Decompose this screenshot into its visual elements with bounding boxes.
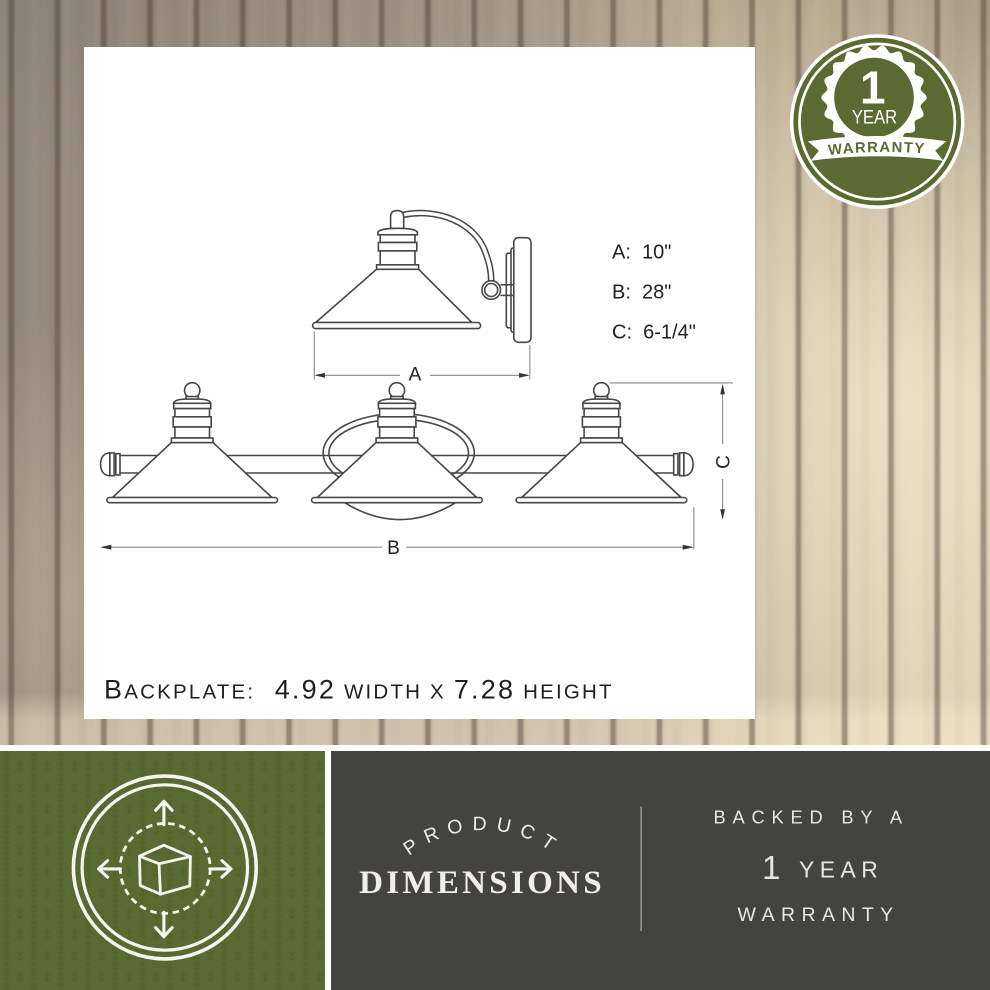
svg-text:BACKED BY A: BACKED BY A <box>714 807 909 828</box>
svg-text:1: 1 <box>762 849 780 886</box>
svg-text:YEAR: YEAR <box>852 106 897 128</box>
svg-text:BACKPLATE: 4.92 WIDTH X 7.28: BACKPLATE: 4.92 WIDTH X 7.28 HEIGHT <box>104 675 614 705</box>
svg-text:YEAR: YEAR <box>799 856 883 882</box>
svg-text:B: 28": B: 28" <box>612 282 671 304</box>
svg-text:A: A <box>409 365 422 386</box>
svg-text:C: 6-1/4": C: 6-1/4" <box>612 322 696 344</box>
svg-text:PRODUCT: PRODUCT <box>399 813 566 860</box>
svg-text:B: B <box>387 538 400 559</box>
svg-text:WARRANTY: WARRANTY <box>738 904 900 926</box>
svg-text:DIMENSIONS: DIMENSIONS <box>359 865 605 901</box>
svg-text:C: C <box>714 455 735 469</box>
svg-text:A: 10": A: 10" <box>612 242 671 264</box>
